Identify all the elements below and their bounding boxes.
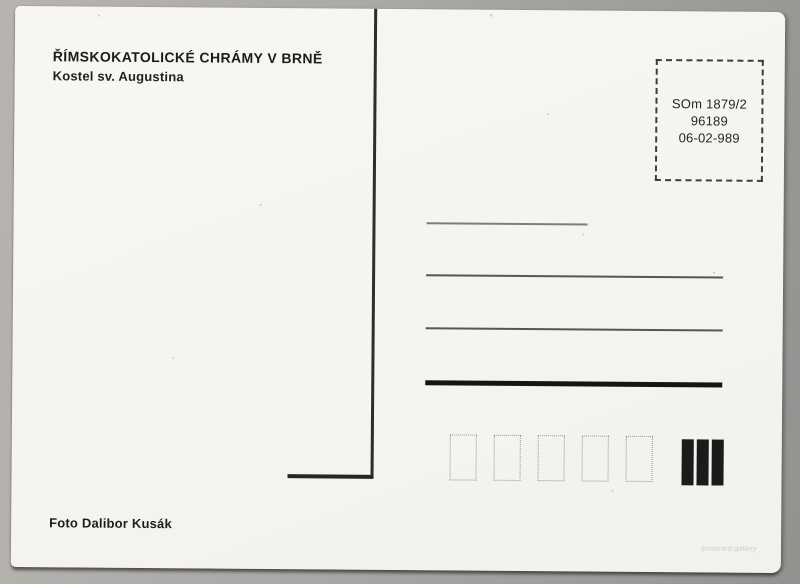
address-line-2 [426,274,723,278]
stamp-code-line: SOm 1879/2 [672,95,747,113]
vertical-divider-line [371,9,377,478]
scan-speck [547,113,549,115]
stamp-placement-box: SOm 1879/2 96189 06-02-989 [655,59,764,182]
photo-credit: Foto Dalibor Kusák [49,515,172,531]
postal-code-box [494,435,521,481]
barcode-bar [711,439,723,485]
postcard-back: ŘÍMSKOKATOLICKÉ CHRÁMY V BRNĚ Kostel sv.… [11,6,785,573]
postal-code-box [581,435,608,481]
stamp-number-line: 96189 [691,112,728,129]
scan-speck [172,357,174,359]
scan-speck [98,15,100,17]
postal-code-box [625,436,652,482]
scan-speck [582,233,584,235]
barcode-bar [681,439,693,485]
address-line-short [427,222,588,225]
watermark-text: /postcard.gallery [700,545,757,552]
publisher-series-title: ŘÍMSKOKATOLICKÉ CHRÁMY V BRNĚ [53,48,323,66]
postal-code-box [537,435,564,481]
postal-barcode [681,439,723,485]
divider-foot-line [288,474,374,478]
caption-text: Kostel sv. Augustina [53,68,184,84]
scan-speck [260,204,262,206]
stamp-date-line: 06-02-989 [679,129,740,146]
scan-speck [490,14,492,17]
scan-speck [611,490,613,492]
postal-code-box [450,434,477,480]
address-line-3 [426,327,723,331]
address-line-thick [425,380,722,387]
postal-code-boxes [450,434,653,482]
scan-speck [713,271,715,273]
barcode-bar [696,439,708,485]
